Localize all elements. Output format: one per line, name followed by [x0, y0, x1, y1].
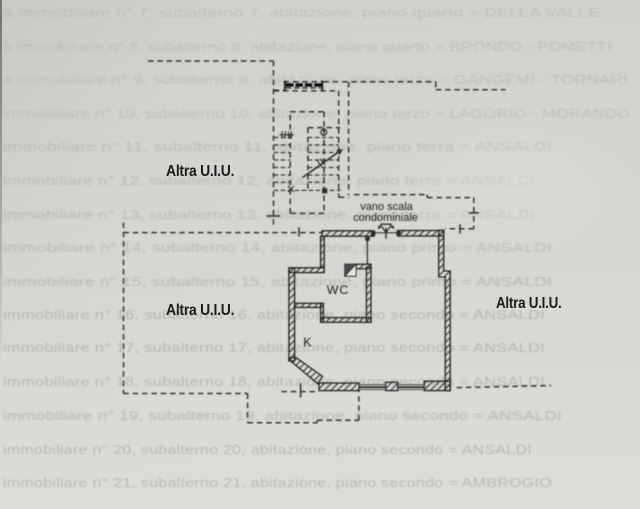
svg-text:WC: WC	[327, 283, 350, 297]
svg-text:K: K	[303, 336, 312, 350]
svg-text:condominiale: condominiale	[353, 212, 418, 224]
